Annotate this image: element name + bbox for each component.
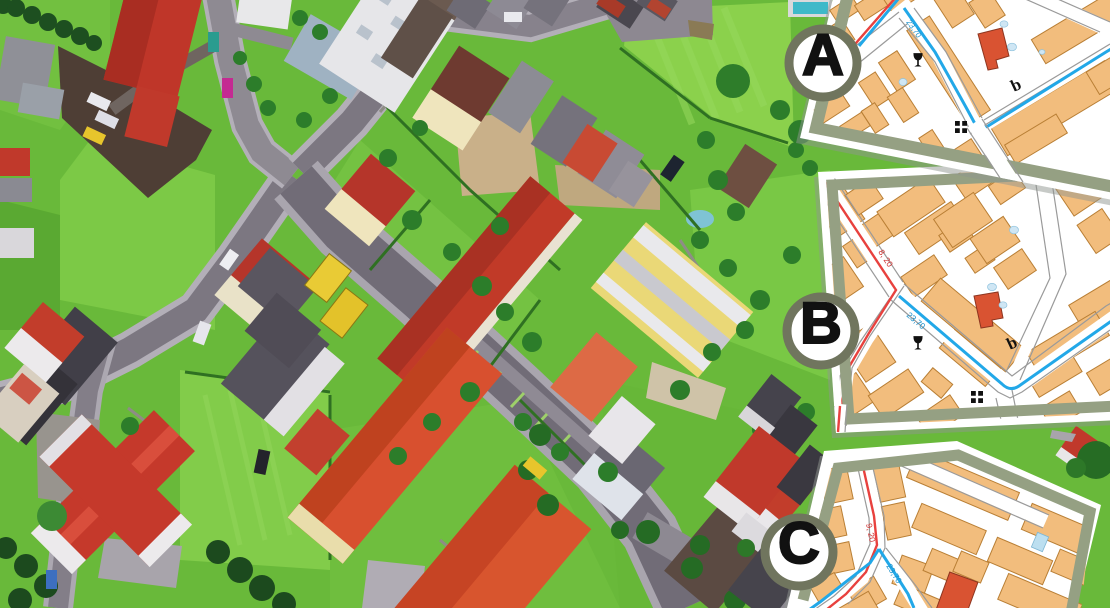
svg-text:A: A [802, 23, 844, 88]
svg-text:C: C [778, 511, 820, 576]
svg-text:B: B [800, 291, 842, 356]
